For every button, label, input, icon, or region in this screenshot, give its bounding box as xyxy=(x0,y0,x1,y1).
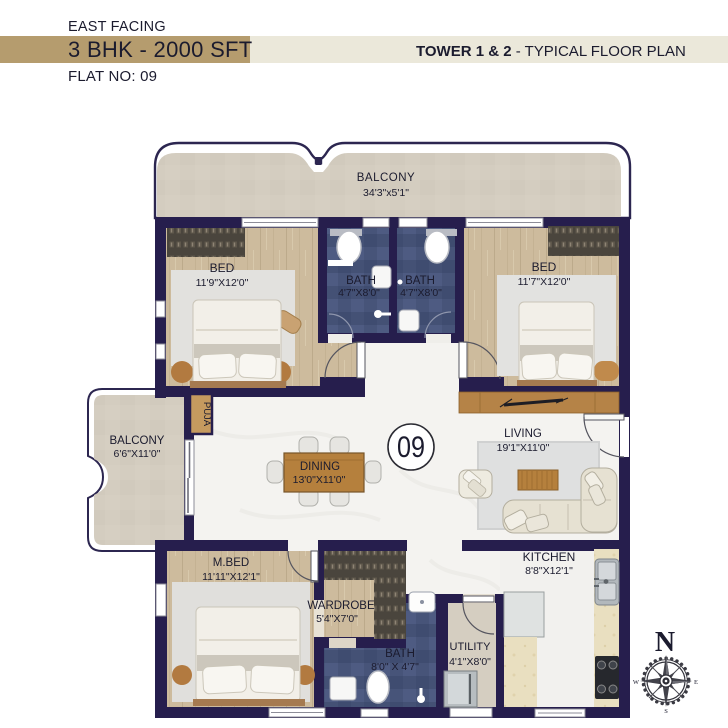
svg-text:11'9"X12'0": 11'9"X12'0" xyxy=(196,277,249,289)
svg-text:11'7"X12'0": 11'7"X12'0" xyxy=(518,276,571,288)
svg-text:4'7"X8'0": 4'7"X8'0" xyxy=(338,287,380,299)
svg-text:BATH: BATH xyxy=(405,275,435,287)
svg-text:3 BHK - 2000 SFT: 3 BHK - 2000 SFT xyxy=(68,37,253,62)
svg-text:BED: BED xyxy=(532,260,557,274)
svg-text:4'1"X8'0": 4'1"X8'0" xyxy=(449,656,491,668)
svg-text:BED: BED xyxy=(210,261,235,275)
svg-text:DINING: DINING xyxy=(300,461,340,473)
svg-text:M.BED: M.BED xyxy=(213,557,249,569)
svg-text:34'3"x5'1": 34'3"x5'1" xyxy=(363,187,409,199)
svg-text:PUJA: PUJA xyxy=(201,402,212,427)
svg-text:5'4"X7'0": 5'4"X7'0" xyxy=(316,613,358,625)
svg-text:6'6"X11'0": 6'6"X11'0" xyxy=(114,448,161,460)
svg-text:BALCONY: BALCONY xyxy=(357,172,415,184)
svg-text:TOWER 1 & 2 - TYPICAL FLOOR: TOWER 1 & 2 - TYPICAL FLOOR PLAN xyxy=(416,43,686,60)
svg-text:N: N xyxy=(655,627,675,658)
svg-text:W: W xyxy=(633,679,640,686)
svg-text:BALCONY: BALCONY xyxy=(110,435,165,447)
svg-text:LIVING: LIVING xyxy=(504,428,542,440)
svg-text:BATH: BATH xyxy=(346,275,376,287)
svg-text:8'0" X 4'7": 8'0" X 4'7" xyxy=(371,661,419,673)
svg-text:4'7"X8'0": 4'7"X8'0" xyxy=(400,287,442,299)
svg-text:BATH: BATH xyxy=(385,648,415,660)
svg-text:E: E xyxy=(694,679,698,686)
svg-text:09: 09 xyxy=(397,431,425,464)
svg-text:11'11"X12'1": 11'11"X12'1" xyxy=(202,571,260,583)
svg-text:EAST FACING: EAST FACING xyxy=(68,19,166,35)
svg-text:UTILITY: UTILITY xyxy=(450,641,492,653)
svg-text:KITCHEN: KITCHEN xyxy=(523,550,576,564)
svg-text:WARDROBE: WARDROBE xyxy=(307,600,375,612)
svg-text:13'0"X11'0": 13'0"X11'0" xyxy=(293,474,346,486)
svg-text:19'1"X11'0": 19'1"X11'0" xyxy=(497,442,550,454)
svg-text:S: S xyxy=(664,708,668,715)
svg-text:FLAT NO: 09: FLAT NO: 09 xyxy=(68,68,157,85)
svg-text:8'8"X12'1": 8'8"X12'1" xyxy=(525,565,573,577)
